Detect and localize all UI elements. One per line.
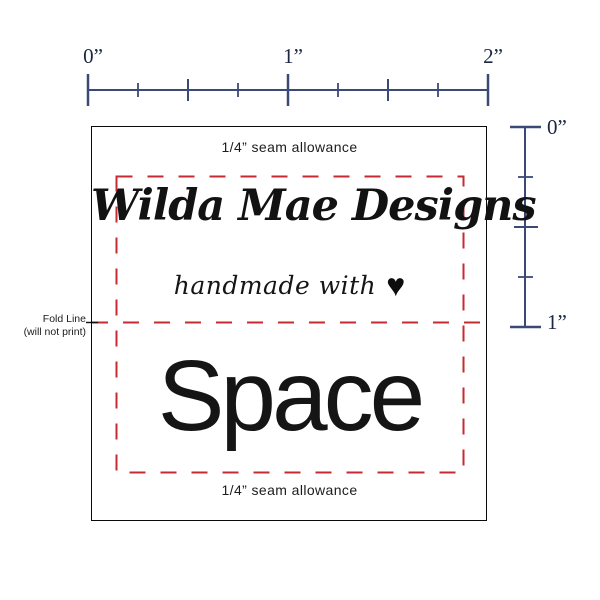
fold-note-line2: (will not print) <box>0 326 86 339</box>
tagline-text: handmade with <box>174 271 377 300</box>
heart-icon: ♥ <box>386 273 405 298</box>
fold-note: Fold Line (will not print) <box>0 313 86 338</box>
seam-allowance-bottom-text: 1/4” seam allowance <box>91 482 488 498</box>
hruler-label-2in: 2” <box>483 44 503 69</box>
seam-allowance-top-text: 1/4” seam allowance <box>91 139 488 155</box>
brand-title: Wilda Mae Designs <box>91 181 488 231</box>
label-design-proof: 0” 1” 2” 0” 1” 1/4” seam allowance Wilda… <box>0 0 600 600</box>
label-main-text: Space <box>91 346 488 446</box>
hruler-label-0in: 0” <box>83 44 103 69</box>
vruler-label-0in: 0” <box>547 115 567 140</box>
tagline: handmade with ♥ <box>91 271 488 300</box>
hruler-label-1in: 1” <box>283 44 303 69</box>
horizontal-ruler <box>88 74 488 106</box>
fold-note-line1: Fold Line <box>0 313 86 326</box>
vruler-label-1in: 1” <box>547 310 567 335</box>
